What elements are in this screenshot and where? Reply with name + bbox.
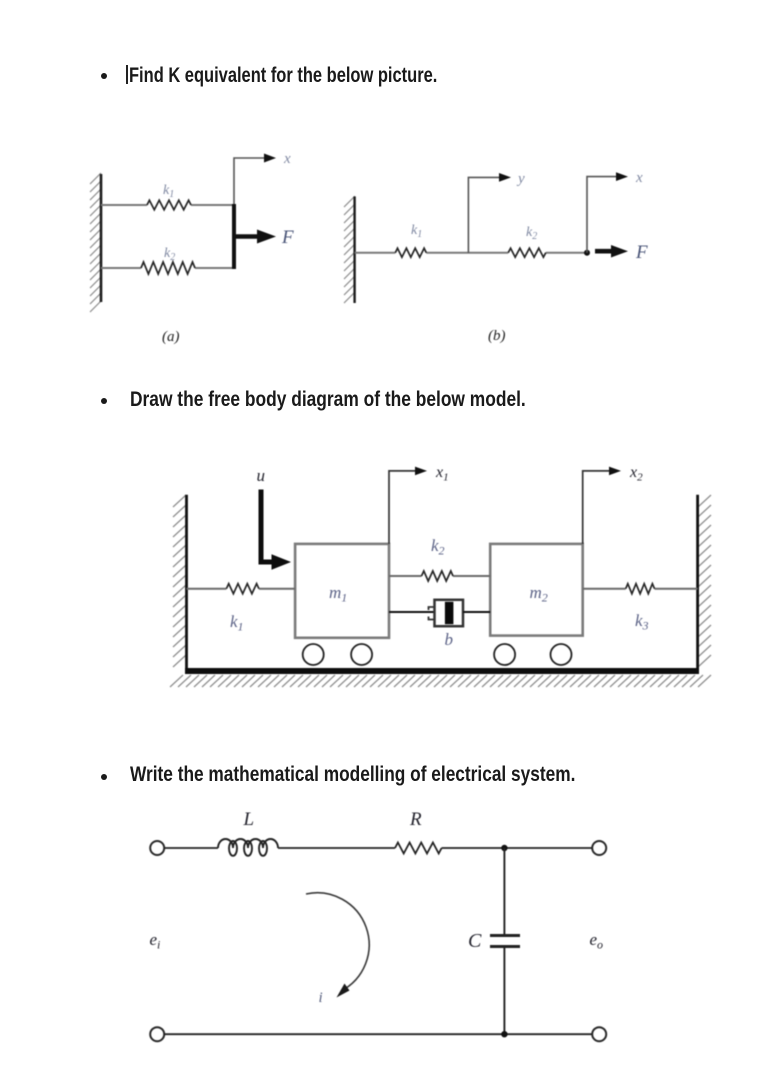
svg-text:k3: k3 [635, 611, 649, 633]
svg-text:x: x [283, 151, 291, 167]
svg-text:x2: x2 [629, 464, 643, 484]
svg-text:x: x [635, 170, 643, 186]
svg-text:(a): (a) [162, 329, 180, 345]
svg-text:(b): (b) [488, 328, 506, 344]
svg-text:k2: k2 [431, 536, 445, 558]
svg-text:x1: x1 [435, 464, 449, 484]
svg-text:k1: k1 [163, 183, 174, 200]
svg-text:b: b [445, 630, 454, 649]
svg-text:L: L [243, 809, 255, 830]
svg-text:k1: k1 [230, 612, 244, 634]
svg-text:y: y [516, 171, 525, 187]
svg-text:C: C [468, 930, 482, 952]
svg-text:k2: k2 [526, 225, 537, 242]
svg-text:F: F [281, 227, 294, 248]
svg-text:k1: k1 [411, 223, 422, 240]
svg-text:u: u [257, 466, 266, 485]
svg-text:eo: eo [590, 930, 604, 952]
svg-text:i: i [319, 990, 323, 1006]
svg-text:ei: ei [150, 930, 161, 952]
svg-text:k2: k2 [164, 246, 175, 263]
svg-text:F: F [635, 242, 648, 263]
svg-text:R: R [409, 809, 422, 830]
